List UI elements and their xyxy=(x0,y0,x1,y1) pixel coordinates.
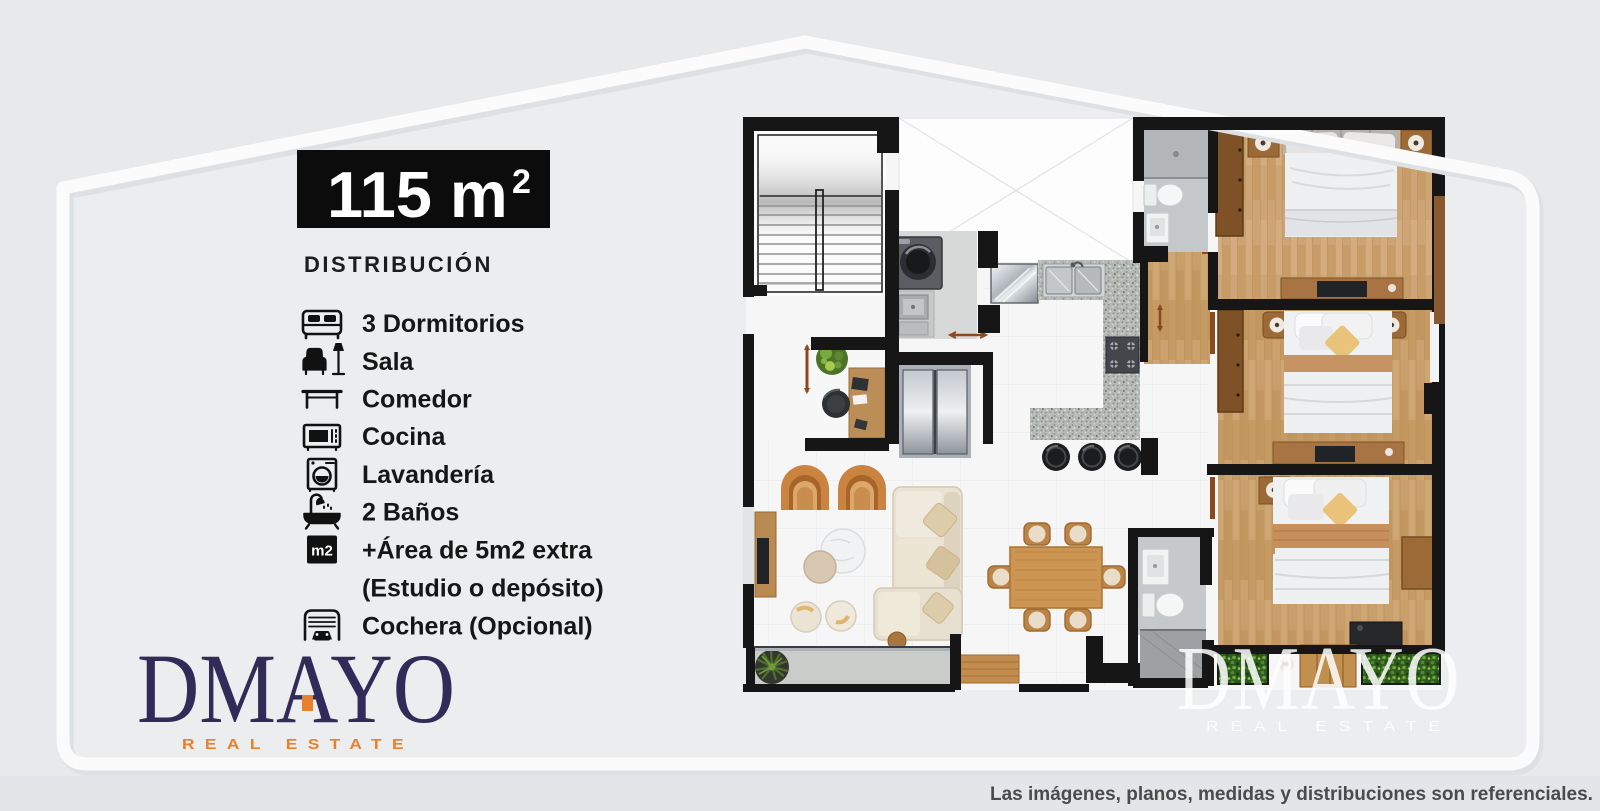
svg-text:Sala: Sala xyxy=(362,348,415,376)
svg-text:2 Baños: 2 Baños xyxy=(362,499,459,527)
svg-text:(Estudio o depósito): (Estudio o depósito) xyxy=(362,575,604,603)
svg-text:Comedor: Comedor xyxy=(362,386,472,414)
svg-text:DMAYO: DMAYO xyxy=(1177,628,1461,729)
svg-text:m2: m2 xyxy=(311,543,333,560)
svg-text:Las imágenes, planos, medidas: Las imágenes, planos, medidas y distribu… xyxy=(990,784,1593,805)
svg-text:2: 2 xyxy=(512,163,531,201)
svg-text:Lavandería: Lavandería xyxy=(362,461,495,489)
svg-text:115 m: 115 m xyxy=(327,158,508,231)
svg-text:DMAYO: DMAYO xyxy=(137,633,455,744)
svg-text:DISTRIBUCIÓN: DISTRIBUCIÓN xyxy=(304,252,493,277)
svg-text:REAL ESTATE: REAL ESTATE xyxy=(182,736,414,753)
svg-text:3 Dormitorios: 3 Dormitorios xyxy=(362,310,525,338)
svg-text:REAL ESTATE: REAL ESTATE xyxy=(1206,718,1452,735)
svg-text:Cocina: Cocina xyxy=(362,423,446,451)
svg-text:+Área de 5m2 extra: +Área de 5m2 extra xyxy=(362,536,593,565)
